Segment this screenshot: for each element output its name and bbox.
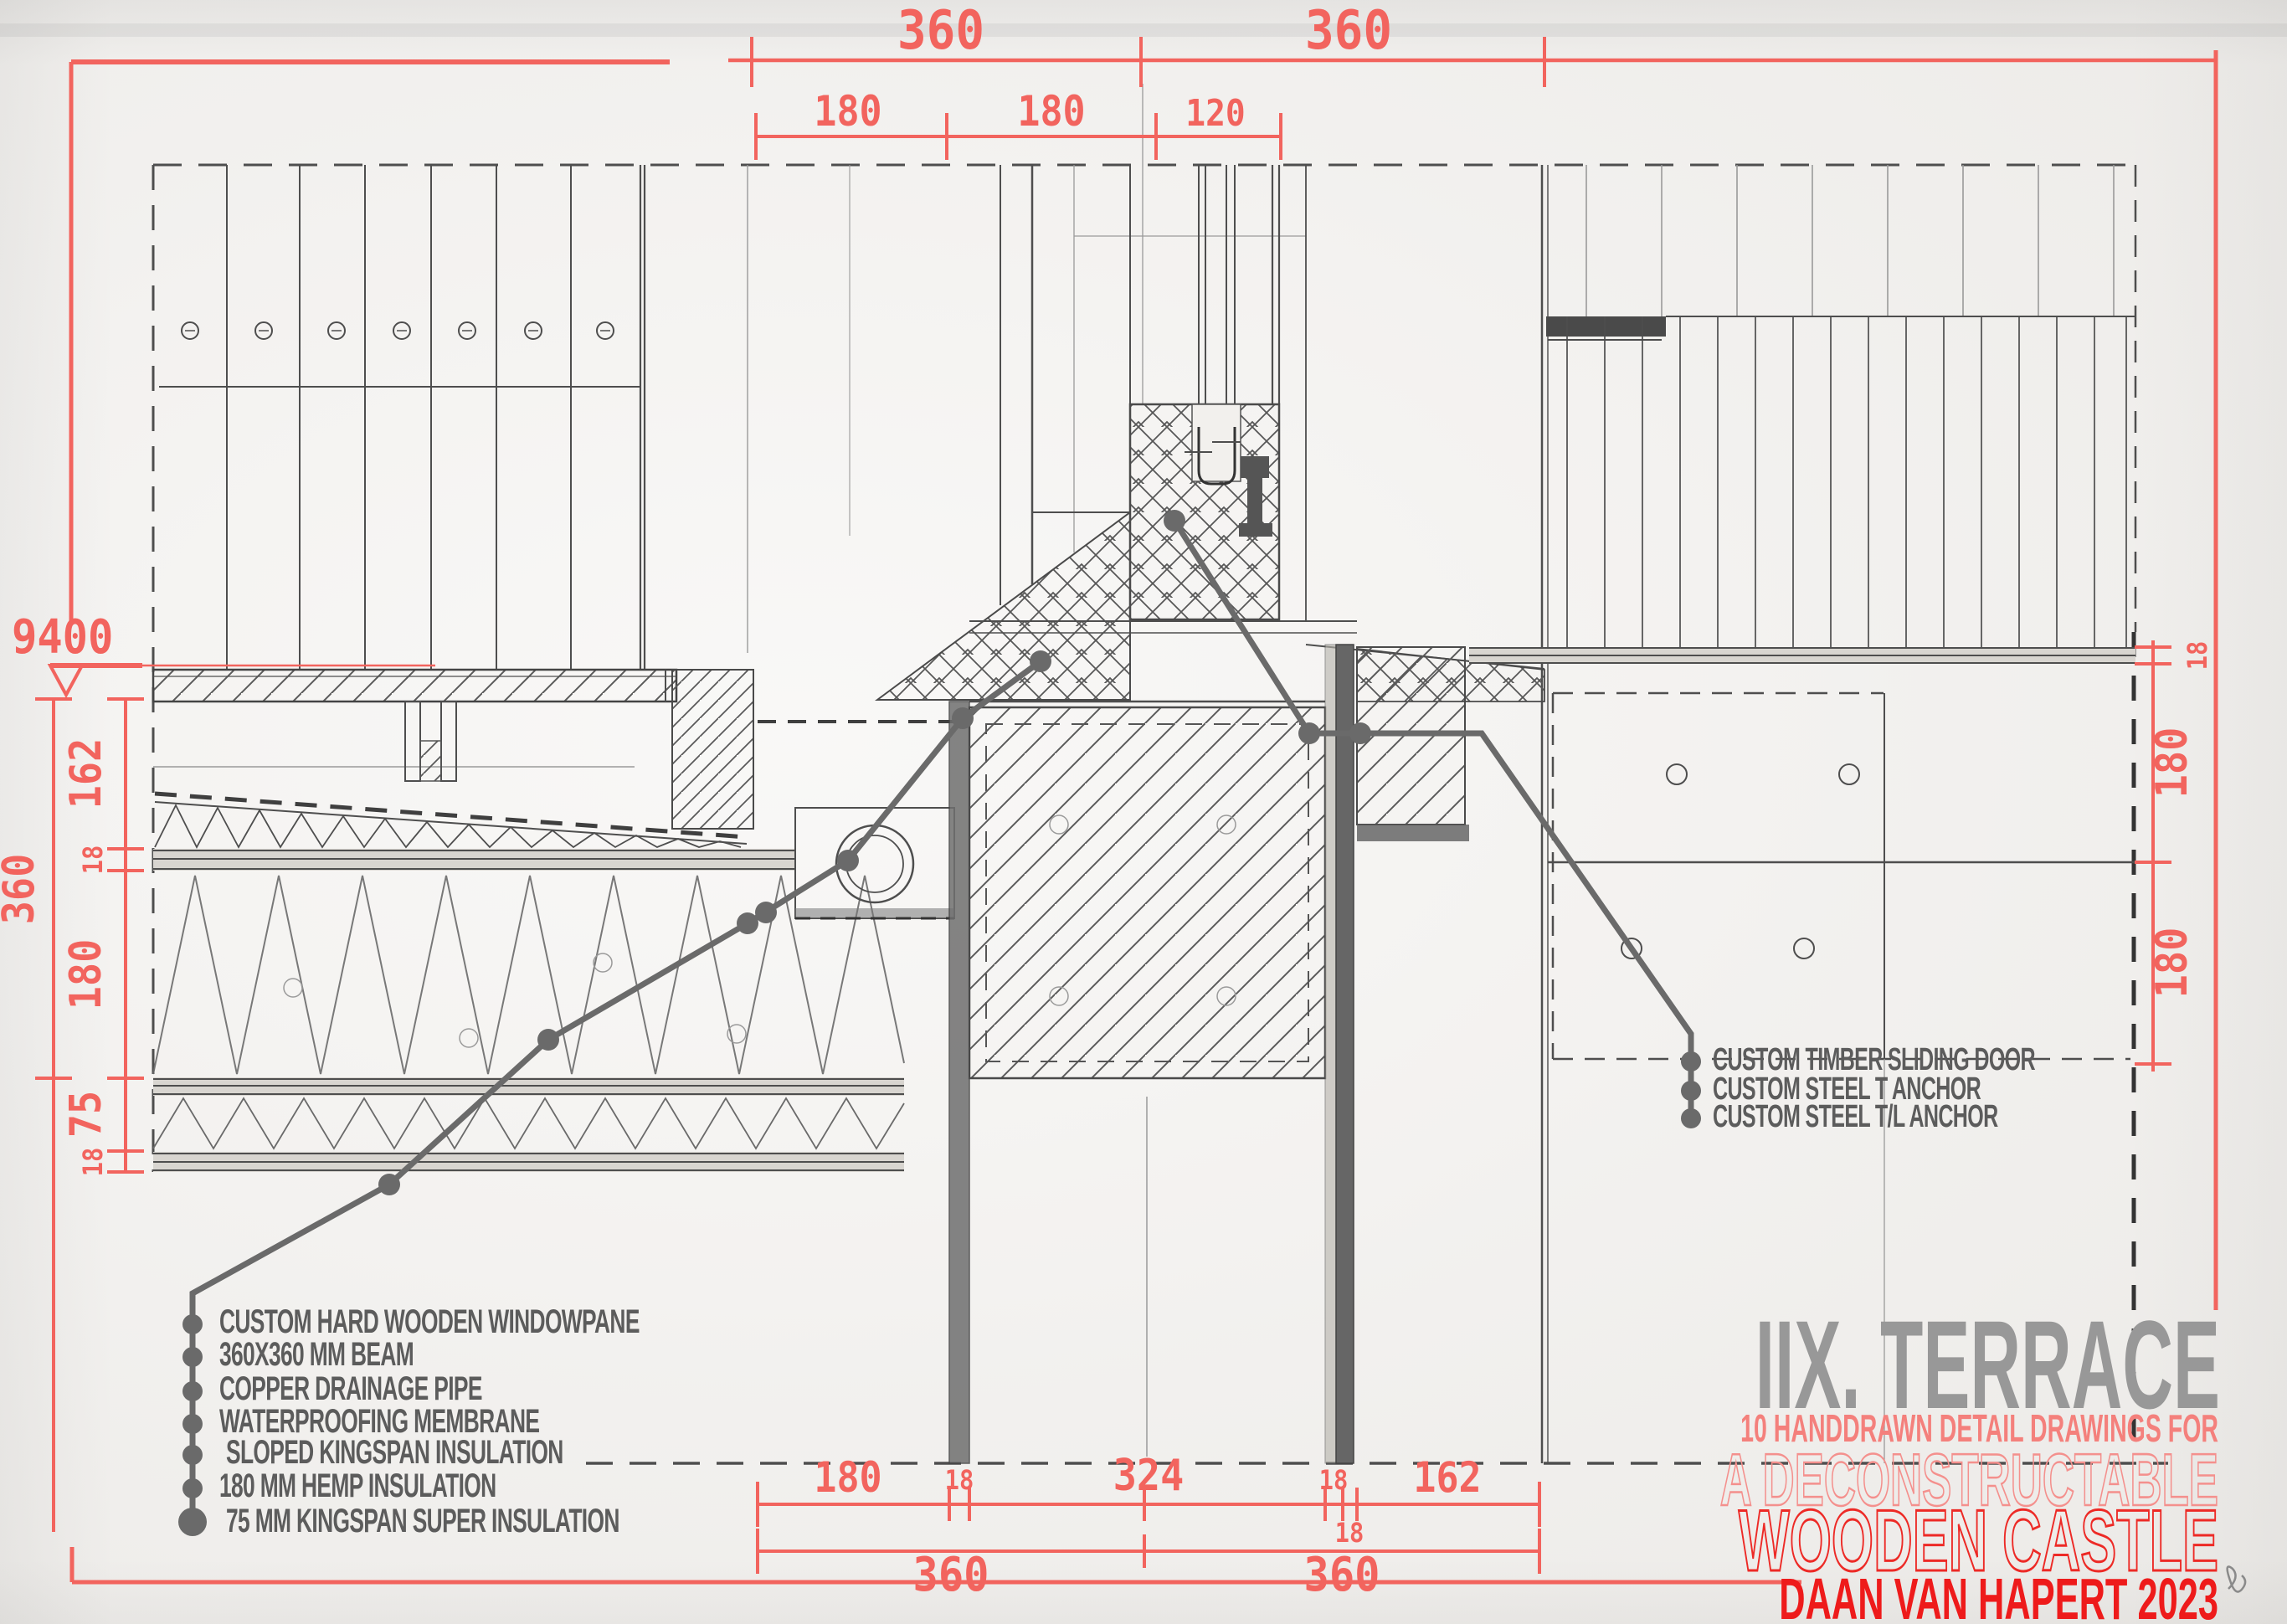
dim-label-bottom-360-1: 360 [912,1547,989,1601]
beam-360x360 [969,702,1325,1078]
callout-tl-anchor: CUSTOM STEEL T/L ANCHOR [1713,1098,1998,1133]
dim-label-top-360-1: 360 [897,0,984,62]
dim-label-right-180b: 180 [2146,928,2197,999]
dim-label-top-120: 120 [1185,91,1246,135]
dimension-bottom: 180 18 324 18 18 162 360 360 [758,1450,1539,1602]
dim-label-left-18b: 18 [79,1148,110,1177]
structural-board-18mm-lower [153,1152,904,1172]
left-cladding-boards [159,165,645,670]
timber-post-right [1336,645,1354,1463]
legend-item-kingspan-super: 75 MM KINGSPAN SUPER INSULATION [226,1503,619,1540]
dim-label-left-18a: 18 [79,845,110,875]
dim-label-left-180: 180 [60,939,111,1010]
legend-item-hemp: 180 MM HEMP INSULATION [219,1467,496,1505]
dim-label-bottom-180: 180 [814,1454,881,1503]
structural-board-18mm-upper [153,849,795,871]
drawing-sheet: 360 360 180 180 120 9400 162 18 180 75 1… [0,0,2287,1624]
dim-label-bottom-360-2: 360 [1303,1547,1380,1601]
structural-board-mid [153,1077,904,1096]
terrace-detail-drawing: 360 360 180 180 120 9400 162 18 180 75 1… [0,0,2287,1624]
dim-label-bottom-18a: 18 [945,1466,974,1497]
dim-label-top-180-2: 180 [1017,88,1085,136]
deck-edge-curb [672,670,753,829]
legend-item-sloped-kingspan: SLOPED KINGSPAN INSULATION [226,1434,563,1472]
dim-label-bottom-18c: 18 [1335,1519,1364,1549]
timber-post-right-packer [1325,645,1336,1463]
legend: CUSTOM HARD WOODEN WINDOWPANE 360X360 MM… [219,1303,640,1540]
pencil-squiggle-mark [2228,1566,2245,1591]
dim-label-right-180a: 180 [2146,727,2197,799]
screw-icons [182,322,614,339]
dimension-left: 162 18 180 75 18 360 [0,699,144,1532]
dim-label-bottom-162: 162 [1413,1454,1481,1503]
dim-label-top-180-1: 180 [814,88,881,136]
dim-label-left-360: 360 [0,854,44,925]
drawing-section [153,84,2168,1463]
terrace-deck-board [153,670,676,702]
scan-artifact-band [0,23,2287,37]
right-wall-cladding [1546,165,2135,647]
dim-label-right-18: 18 [2183,641,2214,671]
dim-label-left-162: 162 [60,738,111,809]
dim-label-bottom-18b: 18 [1319,1466,1349,1497]
timber-post-left [949,702,969,1463]
deck-pedestal [405,702,456,781]
level-marker-icon [50,666,82,695]
dim-label-bottom-324: 324 [1113,1450,1185,1501]
callouts: CUSTOM TIMBER SLIDING DOOR CUSTOM STEEL … [1713,1041,2035,1133]
legend-item-beam: 360X360 MM BEAM [219,1336,414,1374]
dim-label-left-75: 75 [60,1091,111,1138]
dim-label-level-9400: 9400 [12,609,113,664]
dimension-right: 18 180 180 [2135,640,2213,1072]
hemp-insulation [153,876,904,1074]
steel-plate-bar [1546,316,1666,337]
waterproofing-membrane-line [155,794,747,837]
title-block: IIX. TERRACE 10 HANDDRAWN DETAIL DRAWING… [1720,1294,2220,1624]
dim-label-top-360-2: 360 [1305,0,1392,62]
title-credit: DAAN VAN HAPERT 2023 [1779,1566,2218,1624]
sloped-kingspan-insulation [155,794,747,847]
kingspan-super-insulation [153,1098,904,1149]
